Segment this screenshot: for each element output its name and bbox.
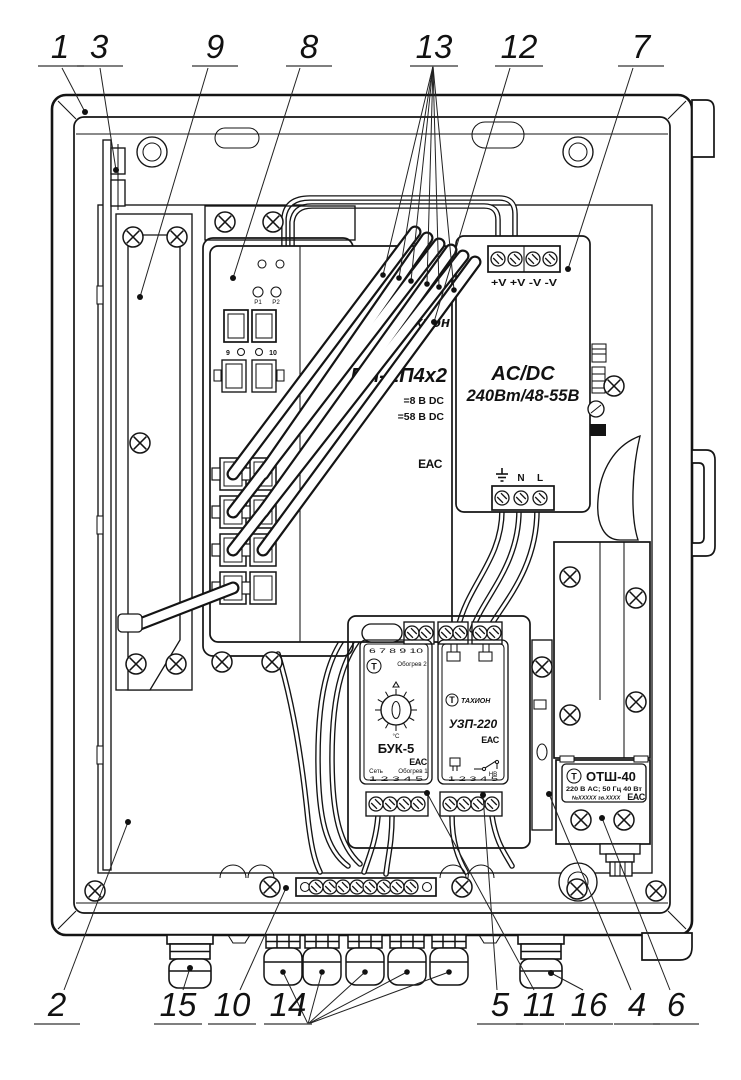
buk-heat2-label: Обогрев 2 — [397, 661, 427, 668]
svg-text:5: 5 — [491, 986, 510, 1023]
callout-5: 5 — [477, 792, 523, 1024]
buk-net-label: Сеть — [369, 768, 383, 775]
heater-bracket — [554, 542, 650, 758]
top-notch-left — [215, 128, 259, 148]
svg-text:Т: Т — [571, 772, 577, 782]
top-knockout-right — [563, 137, 593, 167]
din-rail — [532, 640, 552, 830]
port-label-9: 9 — [226, 350, 230, 357]
cable-connector — [118, 614, 142, 632]
varistor-icon — [447, 644, 492, 661]
buk5-climate-controller: 6 7 8 9 10 Т Обогрев 2 °C БУК-5 EAC Сеть… — [360, 640, 432, 784]
svg-text:13: 13 — [416, 28, 453, 65]
svg-text:Т: Т — [371, 662, 377, 672]
svg-text:9: 9 — [206, 28, 224, 65]
otsh-serial: №ХХХХХ зв.ХХХХ — [572, 796, 621, 802]
cable-glands — [167, 935, 564, 988]
buk-unit-label: °C — [393, 733, 400, 740]
uzp-model: УЗП-220 — [449, 717, 498, 731]
svg-text:Т: Т — [449, 695, 455, 705]
svg-text:15: 15 — [160, 986, 197, 1023]
led-label-p2: P2 — [272, 299, 280, 306]
buk-top-terminals: 6 7 8 9 10 — [369, 648, 424, 655]
top-notch-right — [472, 122, 524, 148]
cabinet-technical-drawing: P1 P2 9 10 Тахион ПИ-ЕП4х2 =8 В DC =58 В… — [0, 0, 741, 1080]
svg-text:2: 2 — [47, 986, 66, 1023]
temperature-dial — [375, 682, 417, 731]
svg-text:12: 12 — [501, 28, 538, 65]
door-hinge — [97, 140, 125, 870]
svg-text:8: 8 — [300, 28, 319, 65]
psu-dc-terminal-labels: +V +V -V -V — [491, 278, 557, 289]
gland-left-large — [167, 935, 213, 988]
relay-contact-icon — [450, 758, 499, 771]
module-bottom-wires — [364, 816, 512, 874]
svg-text:4: 4 — [628, 986, 646, 1023]
otsh-model: ОТШ-40 — [586, 769, 636, 784]
svg-text:3: 3 — [90, 28, 109, 65]
psu-n-label: N — [517, 473, 524, 484]
acdc-power-supply: +V +V -V -V AC/DC 240Вт/48-55В N L — [456, 236, 640, 540]
psu-l-label: L — [537, 473, 543, 484]
drawing-page: P1 P2 9 10 Тахион ПИ-ЕП4х2 =8 В DC =58 В… — [0, 0, 741, 1080]
uzp220-surge-protector: Т ТАХИОН УЗП-220 EAC НВ 1 2 3 4 5 — [438, 640, 508, 784]
uzp-logo-text: ТАХИОН — [461, 698, 491, 705]
cable-fitting — [600, 844, 640, 876]
eac-mark: EAC — [627, 792, 646, 802]
wall-mount-tab — [692, 100, 714, 157]
svg-text:14: 14 — [270, 986, 307, 1023]
switch-dc-rating-2: =58 В DC — [398, 411, 445, 423]
port-label-10: 10 — [269, 350, 277, 357]
otsh40-heater: Т ОТШ-40 220 В AC; 50 Гц 40 Вт №ХХХХХ зв… — [556, 756, 650, 901]
callout-2: 2 — [34, 819, 131, 1024]
svg-text:6: 6 — [667, 986, 686, 1023]
svg-text:16: 16 — [571, 986, 608, 1023]
eac-mark: EAC — [481, 735, 500, 745]
psu-side-connector — [588, 344, 624, 436]
psu-type: AC/DC — [490, 363, 555, 385]
uzp-bottom-terminals: 1 2 3 4 5 — [448, 776, 499, 783]
svg-text:1: 1 — [51, 28, 69, 65]
gland-right-large — [518, 935, 564, 988]
callout-1: 1 — [38, 28, 88, 115]
buk-heat1-label: Обогрев 1 — [398, 768, 428, 775]
top-knockout-left — [137, 137, 167, 167]
psu-rating: 240Вт/48-55В — [466, 387, 580, 405]
switch-dc-rating-1: =8 В DC — [403, 395, 444, 407]
callout-8: 8 — [230, 28, 332, 281]
svg-text:10: 10 — [214, 986, 251, 1023]
buk-bottom-terminals: 1 2 3 4 5 — [369, 776, 424, 783]
eac-mark: EAC — [409, 757, 428, 767]
buk-model: БУК-5 — [378, 741, 415, 756]
svg-text:11: 11 — [523, 986, 557, 1023]
svg-text:7: 7 — [632, 28, 652, 65]
side-handle — [692, 450, 715, 556]
din-module-cluster: 6 7 8 9 10 Т Обогрев 2 °C БУК-5 EAC Сеть… — [348, 616, 530, 848]
led-label-p1: P1 — [254, 299, 262, 306]
eac-mark: EAC — [418, 457, 443, 471]
cable-strap — [598, 436, 640, 540]
